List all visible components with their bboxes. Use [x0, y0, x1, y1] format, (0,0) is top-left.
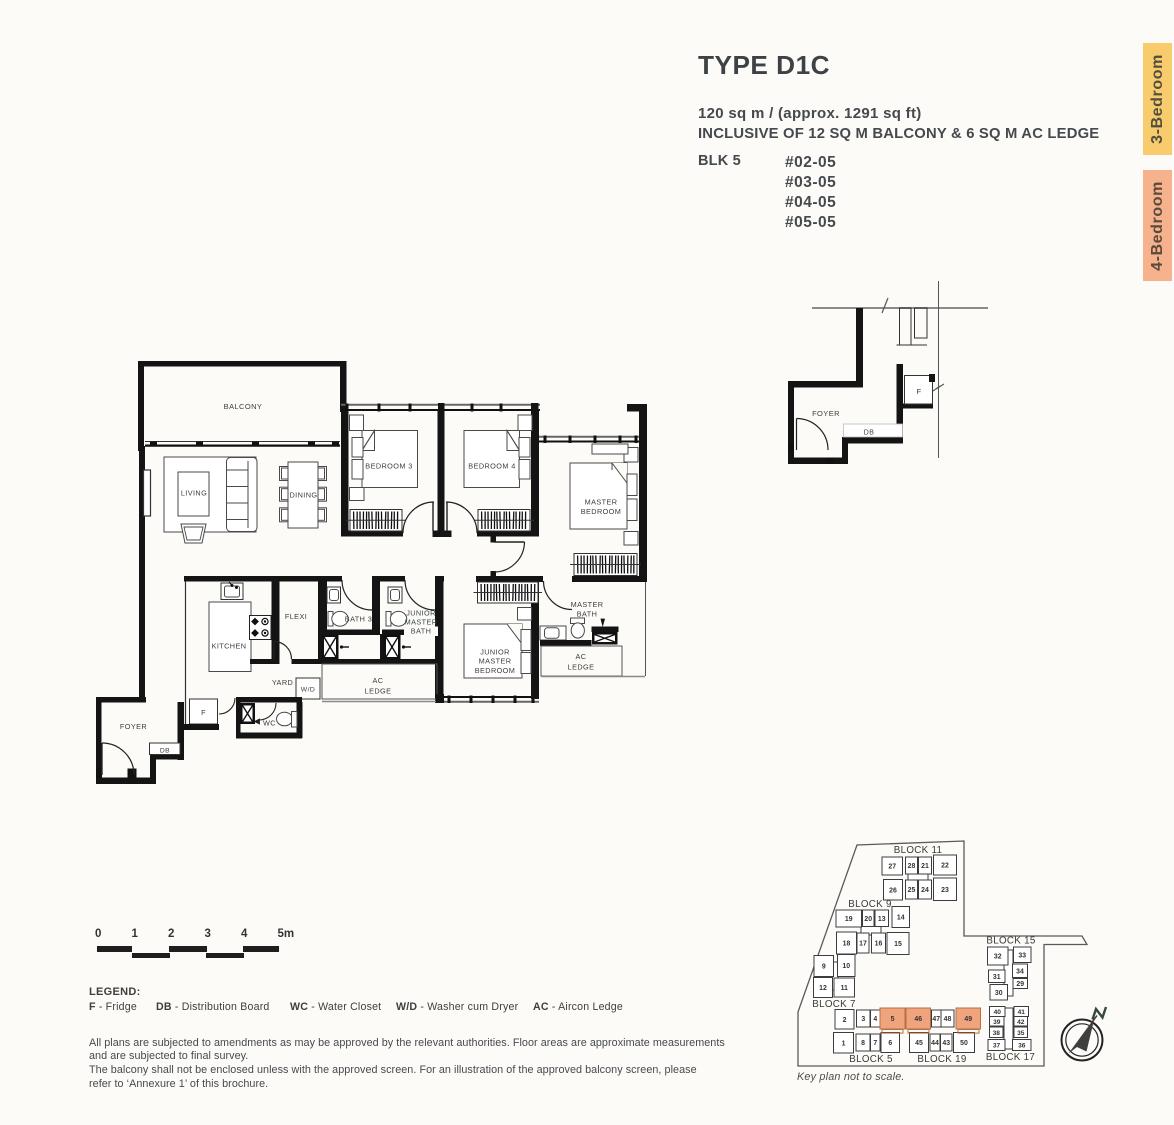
svg-text:42: 42: [1017, 1019, 1025, 1026]
svg-text:FLEXI: FLEXI: [285, 612, 307, 621]
svg-text:LEDGE: LEDGE: [365, 687, 392, 696]
svg-text:50: 50: [960, 1040, 968, 1047]
svg-text:48: 48: [944, 1016, 952, 1023]
svg-text:30: 30: [995, 990, 1003, 997]
svg-text:11: 11: [841, 985, 848, 992]
svg-text:KITCHEN: KITCHEN: [212, 642, 247, 651]
svg-text:AC: AC: [373, 676, 384, 685]
svg-text:BEDROOM: BEDROOM: [475, 666, 516, 675]
svg-text:41: 41: [1018, 1009, 1026, 1016]
svg-text:39: 39: [993, 1019, 1001, 1026]
svg-text:21: 21: [921, 863, 929, 870]
svg-text:BEDROOM 4: BEDROOM 4: [468, 462, 515, 471]
svg-text:43: 43: [942, 1040, 950, 1047]
svg-text:5: 5: [891, 1016, 895, 1023]
svg-text:38: 38: [993, 1030, 1001, 1037]
svg-text:9: 9: [822, 964, 826, 971]
svg-text:BLOCK 11: BLOCK 11: [894, 845, 943, 856]
svg-text:BEDROOM 3: BEDROOM 3: [365, 462, 412, 471]
svg-text:8: 8: [861, 1040, 865, 1047]
svg-text:19: 19: [845, 916, 853, 923]
svg-text:22: 22: [941, 863, 949, 870]
svg-text:BLOCK 15: BLOCK 15: [986, 936, 1035, 947]
svg-text:7: 7: [873, 1040, 877, 1047]
svg-text:W/D: W/D: [301, 687, 315, 694]
svg-text:JUNIOR: JUNIOR: [406, 609, 436, 618]
svg-text:LIVING: LIVING: [181, 489, 207, 498]
svg-text:WC: WC: [263, 719, 276, 728]
svg-text:20: 20: [864, 916, 872, 923]
svg-text:BLOCK 9: BLOCK 9: [848, 899, 891, 910]
svg-text:27: 27: [888, 864, 896, 871]
svg-text:32: 32: [994, 954, 1002, 961]
svg-text:35: 35: [1017, 1030, 1025, 1037]
svg-text:33: 33: [1018, 952, 1026, 959]
svg-text:BEDROOM: BEDROOM: [581, 507, 622, 516]
svg-text:DB: DB: [864, 430, 875, 437]
svg-text:28: 28: [908, 863, 916, 870]
svg-text:MASTER: MASTER: [479, 657, 512, 666]
svg-text:BLOCK 17: BLOCK 17: [986, 1052, 1035, 1063]
svg-text:36: 36: [1018, 1043, 1026, 1050]
svg-text:40: 40: [994, 1009, 1002, 1016]
svg-text:10: 10: [842, 963, 850, 970]
svg-text:15: 15: [894, 941, 902, 948]
svg-text:46: 46: [914, 1016, 922, 1023]
svg-text:1: 1: [842, 1040, 846, 1047]
svg-text:YARD: YARD: [272, 678, 293, 687]
svg-text:DB: DB: [160, 748, 170, 755]
svg-text:LEDGE: LEDGE: [568, 663, 595, 672]
svg-text:BLOCK 19: BLOCK 19: [917, 1054, 966, 1065]
svg-text:12: 12: [819, 985, 827, 992]
svg-text:47: 47: [932, 1016, 940, 1023]
svg-text:16: 16: [875, 941, 883, 948]
svg-text:17: 17: [859, 941, 867, 948]
svg-text:MASTER: MASTER: [405, 618, 438, 627]
svg-text:BATH: BATH: [411, 627, 432, 636]
svg-text:BATH 3: BATH 3: [345, 615, 372, 624]
svg-text:31: 31: [993, 974, 1001, 981]
svg-text:MASTER: MASTER: [585, 498, 618, 507]
svg-text:Key plan not to scale.: Key plan not to scale.: [797, 1071, 905, 1083]
svg-text:6: 6: [888, 1040, 892, 1047]
svg-text:AC: AC: [576, 652, 587, 661]
svg-text:23: 23: [941, 887, 949, 894]
svg-text:13: 13: [878, 916, 886, 923]
svg-text:3: 3: [861, 1016, 865, 1023]
svg-text:2: 2: [843, 1017, 847, 1024]
svg-text:BALCONY: BALCONY: [224, 402, 263, 411]
svg-text:FOYER: FOYER: [120, 722, 147, 731]
svg-text:49: 49: [964, 1016, 972, 1023]
svg-text:26: 26: [889, 887, 897, 894]
svg-text:JUNIOR: JUNIOR: [480, 648, 510, 657]
svg-text:29: 29: [1016, 981, 1024, 988]
svg-text:F: F: [201, 708, 206, 717]
svg-text:4: 4: [873, 1016, 877, 1023]
svg-text:18: 18: [843, 941, 851, 948]
svg-text:MASTER: MASTER: [571, 600, 604, 609]
svg-text:FOYER: FOYER: [812, 409, 840, 418]
svg-text:24: 24: [921, 887, 929, 894]
svg-text:25: 25: [908, 887, 916, 894]
svg-text:BLOCK 7: BLOCK 7: [812, 999, 855, 1010]
svg-text:45: 45: [915, 1040, 923, 1047]
svg-text:34: 34: [1016, 968, 1024, 975]
svg-text:BLOCK 5: BLOCK 5: [849, 1054, 893, 1065]
svg-text:F: F: [917, 387, 922, 396]
svg-text:44: 44: [931, 1040, 939, 1047]
svg-text:DINING: DINING: [290, 491, 318, 500]
svg-text:BATH: BATH: [577, 610, 598, 619]
svg-text:37: 37: [993, 1043, 1001, 1050]
svg-text:14: 14: [897, 915, 905, 922]
